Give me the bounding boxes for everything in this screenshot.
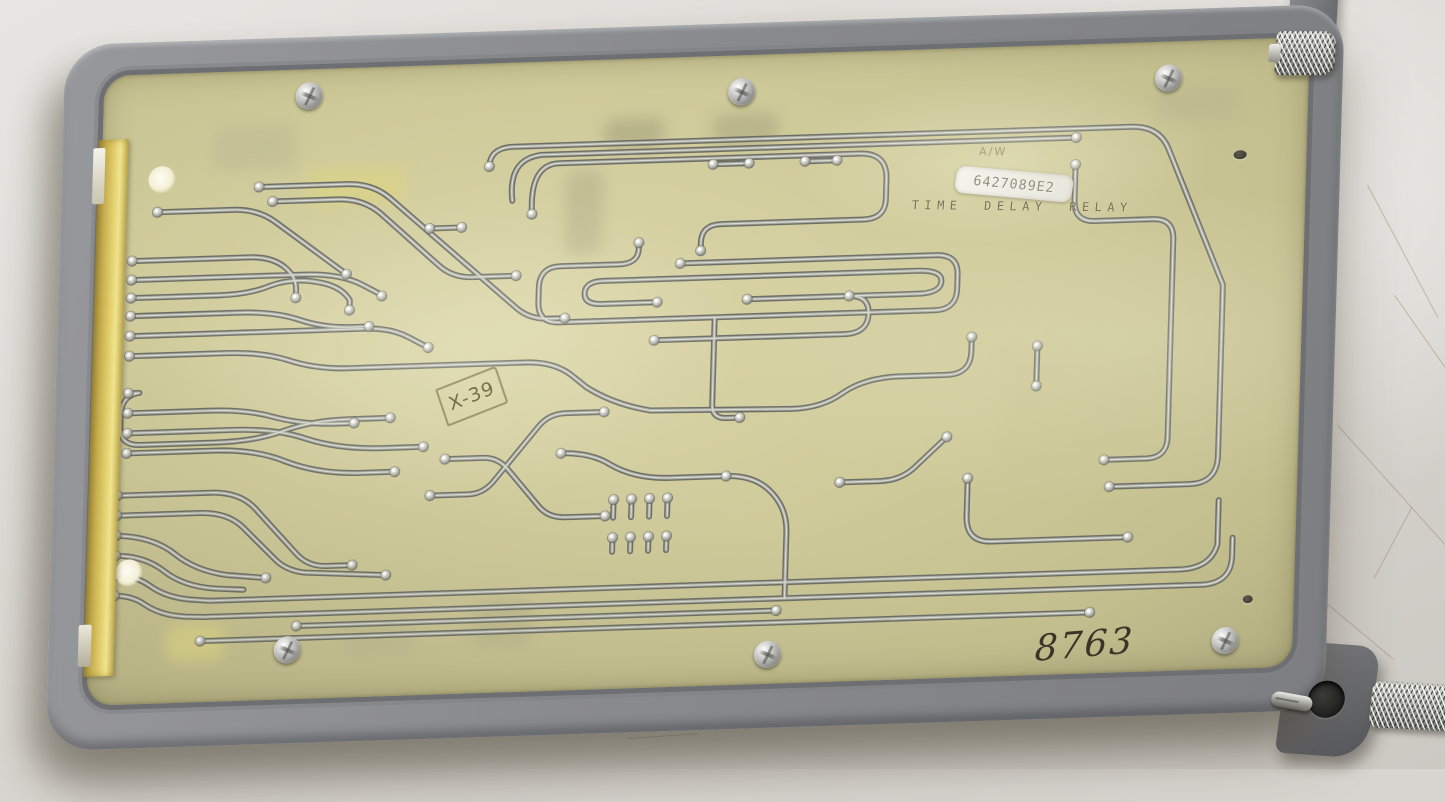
circuit-traces-svg <box>86 37 1310 706</box>
scratch-mark <box>1367 185 1438 318</box>
solder-pad <box>267 196 278 207</box>
thumb-knob-top <box>1274 31 1337 75</box>
solder-pad <box>341 269 352 280</box>
solder-pad <box>1071 132 1082 143</box>
solder-pad <box>291 292 302 303</box>
part-number-text: 6427089E2 <box>972 172 1056 195</box>
pcb-board: A/W 6427089E2 TIME DELAY RELAY X-39 8763 <box>86 37 1310 706</box>
solder-pad <box>644 493 655 504</box>
solder-pad <box>695 245 706 256</box>
solder-pad <box>962 473 973 484</box>
solder-pad <box>124 351 135 362</box>
solder-pad <box>364 321 375 332</box>
solder-pad <box>652 297 663 308</box>
solder-pad <box>1099 454 1110 465</box>
photo-scene: A/W 6427089E2 TIME DELAY RELAY X-39 8763 <box>0 0 1445 769</box>
solder-pad <box>634 237 645 248</box>
scratch-mark <box>628 733 698 739</box>
solder-pad <box>721 471 732 482</box>
solder-pad <box>708 159 719 170</box>
faint-marking-text: A/W <box>979 145 1008 158</box>
solder-pad <box>834 477 845 488</box>
solder-pad <box>608 494 619 505</box>
solder-pad <box>380 570 391 581</box>
solder-pad <box>1122 532 1133 543</box>
solder-pad <box>832 155 843 166</box>
solder-pad <box>643 531 654 542</box>
scratch-mark <box>1394 295 1445 414</box>
solder-pad <box>254 182 265 193</box>
solder-pad <box>662 493 673 504</box>
solder-pad <box>376 291 387 302</box>
solder-pad <box>661 531 672 542</box>
solder-pad <box>385 412 396 423</box>
solder-pad <box>744 158 755 169</box>
solder-pad <box>649 335 660 346</box>
solder-pad <box>1032 341 1043 352</box>
solder-pad <box>527 209 538 220</box>
handwritten-number: 8763 <box>1034 620 1135 670</box>
solder-pad <box>425 490 436 501</box>
solder-pad <box>734 412 745 423</box>
solder-pad <box>966 332 977 343</box>
solder-pad <box>800 156 811 167</box>
solder-pad <box>1070 159 1081 170</box>
solder-pad <box>675 258 686 269</box>
solder-pad <box>123 388 134 399</box>
solder-pad <box>1104 481 1115 492</box>
solder-pad <box>121 448 132 459</box>
scratch-mark <box>1374 508 1412 579</box>
solder-pad <box>389 466 400 477</box>
solder-pad <box>440 454 451 465</box>
solder-pad <box>423 342 434 353</box>
solder-pad <box>844 291 855 302</box>
solder-pad <box>556 448 567 459</box>
solder-pad <box>626 494 637 505</box>
solder-pad <box>195 636 206 647</box>
thumb-knob-bottom <box>1368 681 1445 733</box>
solder-pad <box>607 532 618 543</box>
solder-pad <box>260 573 271 584</box>
solder-pad <box>511 270 522 281</box>
solder-pad <box>484 161 495 172</box>
solder-pad <box>1031 381 1042 392</box>
solder-pad <box>126 293 137 304</box>
solder-pad <box>347 560 358 571</box>
solder-pad <box>152 207 163 218</box>
solder-pad <box>742 294 753 305</box>
solder-pad <box>418 441 429 452</box>
inspection-stamp-text: X-39 <box>446 377 498 415</box>
solder-pad <box>600 511 611 522</box>
relay-module: A/W 6427089E2 TIME DELAY RELAY X-39 8763 <box>45 4 1345 751</box>
solder-pad <box>942 432 953 443</box>
solder-pad <box>127 256 138 267</box>
solder-pad <box>1084 607 1095 618</box>
solder-pad <box>122 428 133 439</box>
solder-pad <box>456 222 467 233</box>
solder-pad <box>122 408 133 419</box>
solder-pad <box>344 305 355 316</box>
stamp-title-text: TIME DELAY RELAY <box>911 198 1133 215</box>
solder-pad <box>125 331 136 342</box>
solder-pad <box>291 621 302 632</box>
solder-pad <box>125 311 136 322</box>
solder-pad <box>349 418 360 429</box>
solder-pad <box>560 313 571 324</box>
solder-pad <box>625 532 636 543</box>
solder-pad <box>771 605 782 616</box>
solder-pad <box>599 407 610 418</box>
solder-pad <box>424 223 435 234</box>
solder-pad <box>126 275 137 286</box>
